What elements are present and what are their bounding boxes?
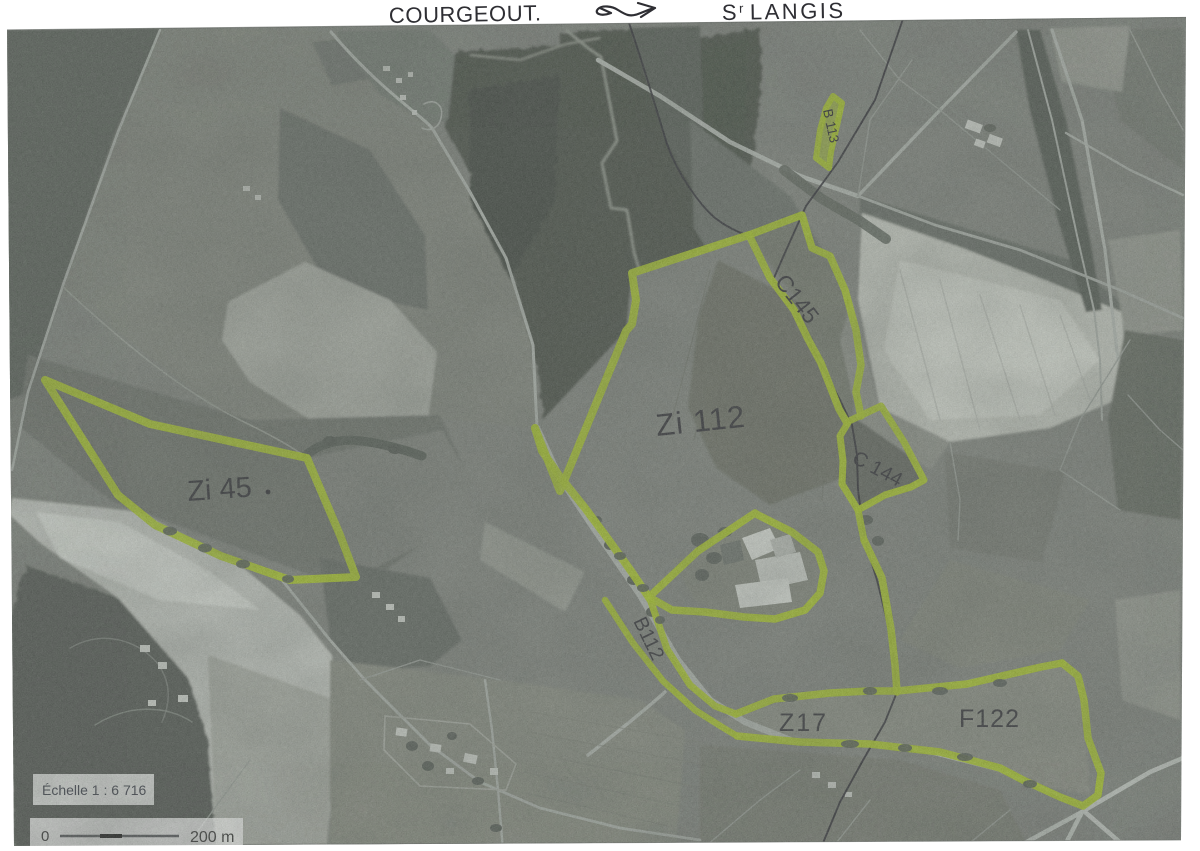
svg-text:COURGEOUT.: COURGEOUT.: [389, 0, 542, 28]
